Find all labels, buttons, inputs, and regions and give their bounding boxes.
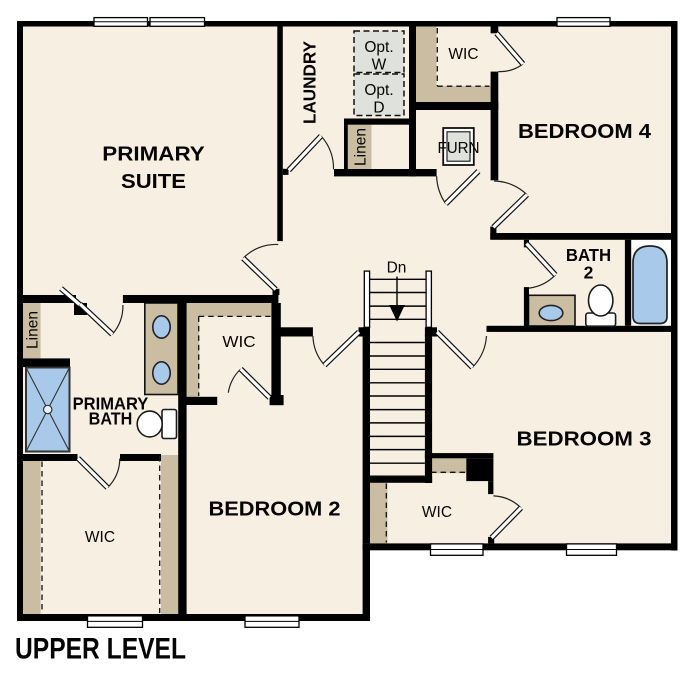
svg-text:BEDROOM 3: BEDROOM 3 — [517, 429, 652, 451]
svg-text:SUITE: SUITE — [121, 171, 186, 193]
svg-text:Opt.: Opt. — [364, 39, 393, 56]
svg-text:Linen: Linen — [25, 311, 42, 349]
svg-text:Opt.: Opt. — [364, 82, 393, 99]
svg-text:LAUNDRY: LAUNDRY — [300, 41, 320, 124]
svg-text:WIC: WIC — [85, 529, 115, 546]
svg-text:D: D — [373, 100, 384, 117]
svg-text:UPPER LEVEL: UPPER LEVEL — [15, 633, 186, 666]
svg-text:BATH: BATH — [89, 409, 133, 429]
svg-text:BEDROOM 2: BEDROOM 2 — [209, 499, 341, 521]
svg-text:FURN: FURN — [438, 140, 480, 157]
svg-text:W: W — [372, 57, 387, 74]
svg-text:2: 2 — [584, 263, 594, 283]
svg-text:PRIMARY: PRIMARY — [102, 144, 205, 166]
svg-text:WIC: WIC — [222, 334, 255, 351]
svg-text:BEDROOM 4: BEDROOM 4 — [518, 121, 652, 143]
svg-text:WIC: WIC — [422, 504, 452, 521]
svg-text:Dn: Dn — [387, 259, 407, 276]
svg-text:WIC: WIC — [448, 46, 478, 63]
svg-text:Linen: Linen — [353, 128, 370, 166]
